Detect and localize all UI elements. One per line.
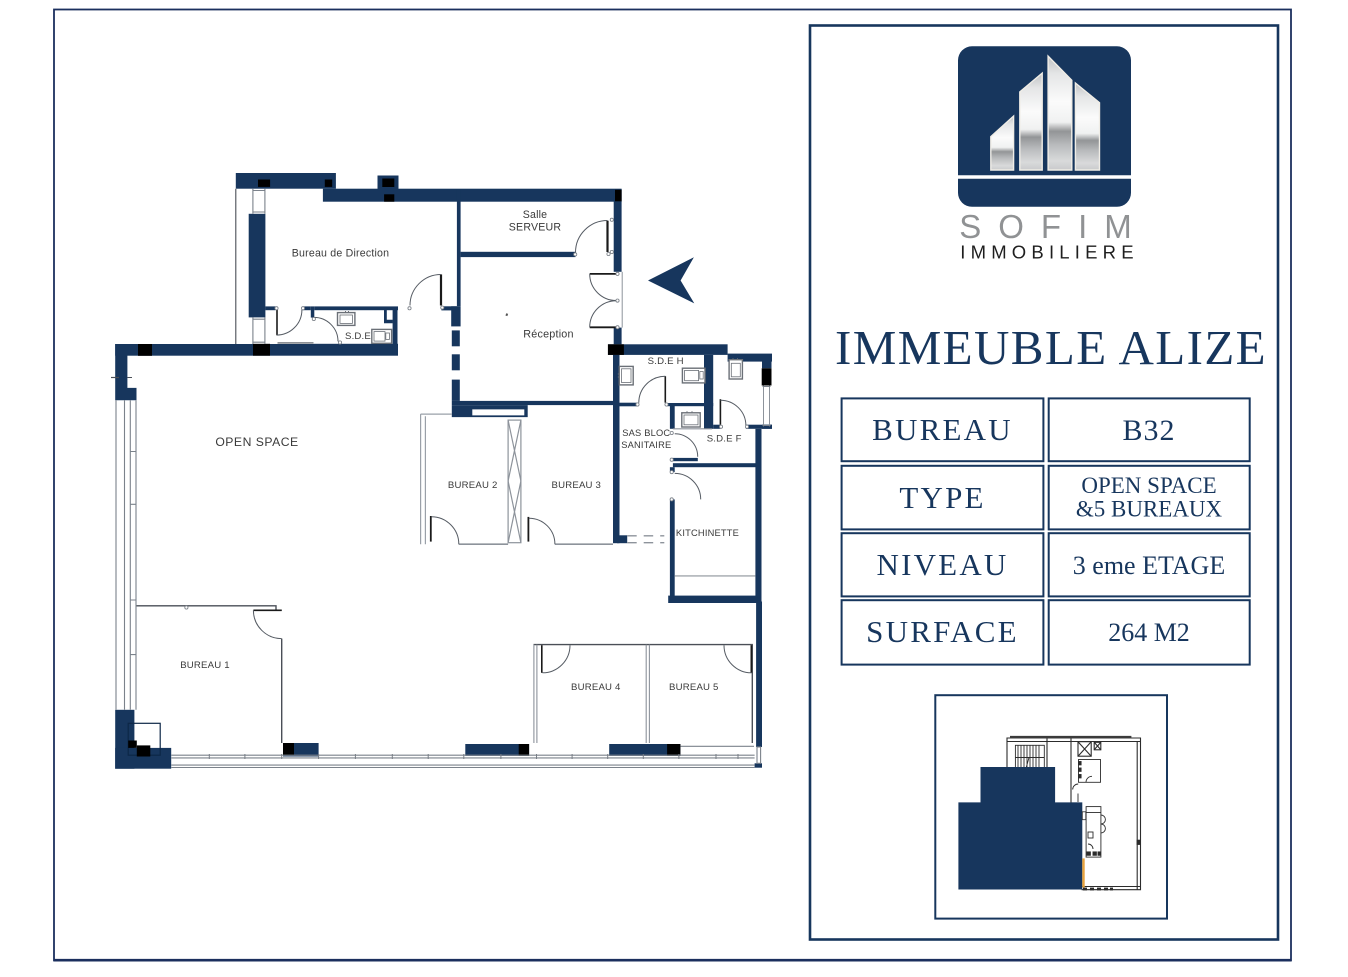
svg-text:KITCHINETTE: KITCHINETTE: [676, 528, 739, 538]
svg-text:BUREAU 1: BUREAU 1: [180, 660, 230, 671]
svg-text:Salle: Salle: [523, 209, 548, 221]
svg-text:B32: B32: [1122, 414, 1175, 447]
svg-text:SAS BLOC: SAS BLOC: [622, 428, 670, 438]
svg-text:S.D.E: S.D.E: [345, 331, 371, 342]
svg-text:OPEN SPACE: OPEN SPACE: [215, 435, 298, 449]
svg-text:BUREAU: BUREAU: [872, 412, 1013, 447]
svg-text:SERVEUR: SERVEUR: [509, 222, 562, 234]
svg-text:BUREAU 2: BUREAU 2: [448, 480, 498, 491]
svg-text:NIVEAU: NIVEAU: [876, 547, 1008, 582]
svg-text:TYPE: TYPE: [899, 480, 985, 515]
svg-text:S.D.E F: S.D.E F: [707, 434, 742, 445]
svg-text:Réception: Réception: [523, 329, 573, 341]
svg-text:BUREAU 3: BUREAU 3: [552, 480, 602, 491]
svg-text:IMMOBILIERE: IMMOBILIERE: [960, 242, 1139, 263]
svg-text:OPEN SPACE: OPEN SPACE: [1081, 473, 1216, 498]
svg-text:S.D.E H: S.D.E H: [648, 356, 684, 367]
svg-text:3 eme ETAGE: 3 eme ETAGE: [1073, 551, 1225, 580]
svg-text:Bureau de Direction: Bureau de Direction: [292, 248, 389, 260]
svg-text:SOFIM: SOFIM: [959, 208, 1149, 245]
svg-text:BUREAU 4: BUREAU 4: [571, 682, 621, 693]
svg-text:IMMEUBLE ALIZE: IMMEUBLE ALIZE: [835, 320, 1267, 375]
svg-text:&5 BUREAUX: &5 BUREAUX: [1076, 497, 1223, 522]
svg-text:264 M2: 264 M2: [1108, 618, 1190, 647]
svg-text:SURFACE: SURFACE: [866, 614, 1019, 649]
svg-text:BUREAU 5: BUREAU 5: [669, 682, 719, 693]
svg-text:SANITAIRE: SANITAIRE: [621, 440, 671, 450]
